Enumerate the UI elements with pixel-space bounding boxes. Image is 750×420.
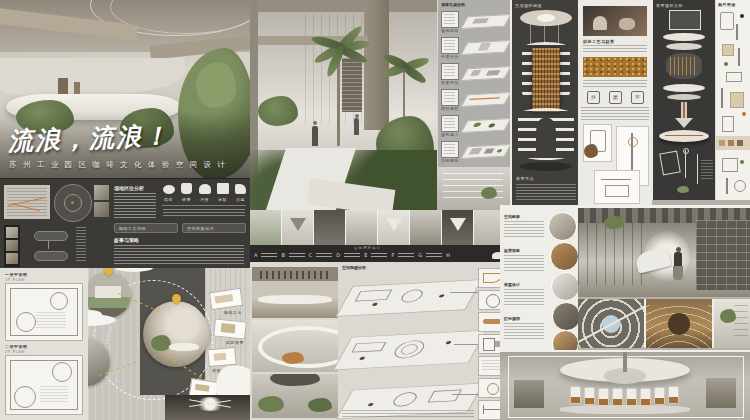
node-counter: [169, 343, 199, 351]
rod-sketch: [697, 154, 698, 184]
gen-step: 中庭抬升: [438, 35, 511, 61]
tag2-label: 空间体验转译: [187, 226, 214, 231]
brew-jar: [612, 388, 623, 406]
leader-line: [450, 292, 478, 293]
hero-render-panel: 流浪，流浪！ 苏 州 工 业 园 区 咖 啡 文 化 体 验 空 间 设 计: [0, 0, 250, 178]
axon-plate-1: [336, 279, 483, 316]
explode-stem: [681, 102, 687, 118]
funnel-shape: [450, 218, 466, 231]
sequence-timeline: 空间序列索引 A B C D E F G H: [250, 245, 510, 262]
note-heading: 装置设计: [504, 282, 520, 287]
gen-step: 路径串联: [438, 87, 511, 113]
gen-step-label: 功能细化: [441, 158, 459, 163]
part-sketch: [736, 24, 738, 40]
plans-panel: 一层平面图 1F PLAN 二层平面图 2F PLAN: [0, 268, 88, 420]
curved-shelf-render: [646, 299, 714, 348]
part-sketch: [722, 116, 734, 132]
mini-roaster-sketch: [584, 144, 598, 158]
axis-letter: H: [446, 252, 450, 258]
divider: [162, 205, 246, 206]
carousel-base: [560, 405, 690, 414]
device-explode-panel: 装置爆炸分析: [652, 0, 716, 200]
axis-letter: F: [391, 252, 394, 258]
journey-node-cafe: [143, 301, 209, 367]
icon-caption-lines: [163, 209, 245, 217]
shelf-plant: [604, 216, 624, 229]
explode-disk: [667, 94, 701, 100]
gen-slab: [461, 40, 511, 54]
coffee-bean-texture: [583, 57, 647, 77]
storage-rack: [696, 220, 750, 290]
brew-jar: [640, 388, 651, 406]
gen-slab: [461, 66, 511, 80]
tower-note: 装置节点: [516, 176, 534, 181]
poster-title: 流浪，流浪！: [7, 119, 170, 158]
site-paragraph: [114, 193, 156, 219]
film-frame: [6, 240, 18, 251]
axis-letter: C: [309, 252, 313, 258]
dome-oculus-render: [578, 299, 646, 348]
site-analysis-panel: 场地区位分析 烘焙 研磨 冲煮 萃取 品鉴 咖啡工艺流程 空间体验转译 叙事与策…: [0, 178, 250, 269]
roaster-silhouette: [619, 18, 635, 30]
part-dot: [740, 14, 744, 18]
note-paragraph: [504, 289, 544, 305]
note-photo: [552, 302, 578, 331]
explode-disk: [663, 33, 705, 41]
plan-round-room: [16, 312, 36, 332]
plan-hatch: [40, 386, 68, 404]
gen-slab: [461, 14, 511, 28]
explode-label: 装置爆炸分析: [656, 3, 683, 8]
vignette: [250, 210, 281, 245]
funnel-shape: [290, 218, 306, 231]
film-strip: [4, 225, 20, 267]
gen-step: 场地体块: [438, 9, 511, 35]
mezzanine-curve: [0, 58, 185, 96]
vignette: [314, 210, 345, 245]
cable: [558, 24, 559, 44]
person-head: [355, 114, 359, 118]
note-heading: 材质策略: [504, 248, 520, 253]
gen-step-label: 体量切分: [441, 80, 459, 85]
narrative-paragraph: [114, 245, 244, 265]
cart-icon: [235, 184, 246, 194]
leader-line: [454, 344, 478, 345]
shelf-bottles: [260, 271, 330, 279]
site-photo-chip: [94, 185, 109, 200]
gen-slab: [461, 118, 511, 132]
tower-amber-core: [532, 48, 560, 112]
figure-skirt: [673, 266, 683, 280]
site-dot: [71, 201, 74, 204]
tag-bar: 咖啡工艺流程: [114, 223, 178, 233]
gen-step-label: 绿化植入: [441, 132, 459, 137]
timeline-title: 空间序列索引: [354, 246, 381, 250]
parts-catalogue-panel: 构件图录: [715, 0, 750, 200]
gen-slab: [461, 92, 511, 106]
courtyard-render-panel: [250, 0, 437, 210]
parts-header: 构件图录: [718, 2, 736, 7]
axon-header: 空间轴测分析: [342, 265, 366, 270]
brew-jar: [626, 388, 637, 406]
plan-round-room: [14, 386, 36, 408]
arrow-down: [48, 241, 49, 249]
interior-shelf-lines: [734, 305, 748, 339]
note-heading: 灯光氛围: [504, 316, 520, 321]
side-machine: [706, 378, 736, 408]
rod-joint: [683, 148, 689, 154]
counter-top: [258, 295, 332, 304]
leader-line: [452, 394, 478, 395]
gen-step-label: 场地体块: [441, 28, 459, 33]
note-photo: [548, 212, 577, 241]
part-sketch: [730, 92, 744, 108]
icon-label: 品鉴: [236, 197, 245, 202]
journey-map-panel: WANDERING COFFEE CULTURE LINE 咖啡豆仓 烘焙装置 …: [88, 268, 255, 420]
plan2-sublabel: 2F PLAN: [5, 349, 25, 354]
explode-funnel: [675, 118, 693, 128]
process-paragraph: [581, 107, 649, 120]
part-sketch: [734, 180, 746, 192]
gen-sketch-box: [441, 89, 459, 106]
axis-bar: [371, 253, 387, 257]
brew-jar: [654, 387, 665, 405]
gen-step: 功能细化: [438, 139, 511, 165]
note-paragraph: [504, 221, 544, 237]
roaster-caption: 烘焙工艺与材质: [583, 39, 615, 44]
process-material-panel: 烘焙工艺与材质 烘 磨 萃: [578, 0, 652, 208]
roaster-photo: [583, 6, 647, 36]
render-bar-counter: [252, 267, 338, 318]
axis-bar: [344, 253, 360, 257]
cable: [544, 24, 545, 44]
design-notes-panel: 空间叙事 材质策略 装置设计 灯光氛围: [500, 208, 578, 350]
gen-sketch-box: [441, 11, 459, 28]
gen-sketch-box: [441, 141, 459, 158]
material-text: [583, 80, 647, 88]
plan1-sublabel: 1F PLAN: [5, 277, 25, 282]
plan-round-room: [52, 362, 72, 382]
vignette: [410, 210, 441, 245]
tower-opening: [536, 118, 556, 152]
roaster-silhouette: [593, 16, 607, 30]
amber-seat: [282, 352, 304, 364]
gen-sketch-box: [441, 37, 459, 54]
part-sketch: [726, 178, 728, 194]
explode-pin-cluster: [666, 53, 702, 79]
shelf-void: [668, 313, 690, 335]
axis-letter: D: [336, 252, 340, 258]
generation-diagram-panel: 形体生成分析 场地体块 中庭抬升 体量切分 路径串联 绿化植入: [437, 0, 511, 167]
tower-annotation-lines: [516, 184, 576, 200]
vignette: [282, 210, 313, 245]
part-sketch: [738, 48, 740, 66]
site-heading: 场地区位分析: [114, 185, 144, 191]
vignette: [442, 210, 473, 245]
design-board-collage: 流浪，流浪！ 苏 州 工 业 园 区 咖 啡 文 化 体 验 空 间 设 计 场…: [0, 0, 750, 420]
rod-sketch: [685, 150, 686, 178]
film-frame: [6, 253, 18, 264]
vertical-note: [76, 227, 86, 263]
brew-jar: [598, 388, 609, 406]
axis-letter: G: [418, 252, 422, 258]
narrative-heading: 叙事与策略: [114, 237, 139, 243]
cafe-plants: [258, 396, 284, 412]
render-machine-room: [252, 320, 338, 372]
icon-label: 冲煮: [200, 197, 209, 202]
axon-plate-2: [333, 330, 487, 370]
center-mast: [623, 352, 627, 372]
journey-tag: 咖啡豆仓: [224, 310, 242, 315]
tag1-label: 咖啡工艺流程: [119, 226, 146, 231]
gen-step-label: 路径串联: [441, 106, 459, 111]
site-map-sketch: [4, 185, 50, 219]
axon-analysis-panel: 空间轴测分析: [250, 262, 510, 420]
gen-sketch-box: [441, 63, 459, 80]
icon-label: 萃取: [218, 197, 227, 202]
render-green-cafe: [252, 374, 338, 418]
node-plant: [151, 335, 171, 351]
beans-icon: [163, 185, 175, 194]
part-sketch: [722, 158, 738, 172]
explode-disk: [663, 84, 705, 92]
gen-sketch-box: [441, 115, 459, 132]
poster-subtitle: 苏 州 工 业 园 区 咖 啡 文 化 体 验 空 间 设 计: [9, 160, 227, 170]
brew-jar: [668, 386, 679, 404]
axon-caption-lines: [342, 410, 474, 417]
tower-label: 生成爆炸轴测: [515, 3, 542, 8]
chandelier-render: [165, 395, 255, 420]
walking-figure: [674, 252, 682, 267]
shrub-left: [258, 96, 298, 126]
vignette-strip: [250, 210, 510, 245]
shelf-plant: [481, 187, 497, 199]
cafe-plants: [308, 398, 332, 412]
part-dot: [742, 112, 746, 116]
part-sketch: [721, 88, 723, 108]
axis-bar: [289, 253, 305, 257]
gen-step: 绿化植入: [438, 113, 511, 139]
roaster-text: [583, 45, 647, 54]
gen-step: 体量切分: [438, 61, 511, 87]
axis-letter: B: [281, 252, 284, 258]
oculus-beam: [578, 304, 646, 343]
white-interior-render: [714, 299, 750, 348]
brew-jar: [570, 386, 581, 404]
film-frame: [6, 227, 18, 238]
part-sketch: [720, 12, 734, 30]
site-circle-map: [54, 184, 92, 222]
floor-plan-2: [5, 355, 83, 415]
note-photo: [551, 272, 578, 301]
note-photo: [550, 242, 578, 271]
brew-carousel-render: [500, 350, 750, 420]
person-head: [313, 121, 317, 125]
vignette: [346, 210, 377, 245]
part-dot: [724, 62, 728, 66]
tower-shadow: [520, 162, 572, 171]
kettle-icon: [199, 184, 211, 194]
plan-hatch: [36, 312, 66, 330]
hanging-branches: [270, 374, 320, 386]
gen-slab: [461, 144, 511, 158]
roof-oculus: [537, 14, 555, 22]
journey-sketch-item: [213, 318, 247, 339]
brew-jar: [584, 387, 595, 405]
process-icon-1: 烘: [587, 91, 600, 104]
note-heading: 空间叙事: [504, 214, 520, 219]
generation-header: 形体生成分析: [441, 2, 465, 7]
gen-step-label: 中庭抬升: [441, 54, 459, 59]
palm-tree: [298, 28, 378, 148]
explode-base-disk: [659, 130, 709, 142]
person: [354, 118, 359, 135]
roof-disk: [520, 10, 572, 26]
bar-equipment: [74, 82, 80, 94]
site-photo-chip: [94, 202, 109, 217]
figure-head: [676, 247, 681, 252]
axis-bar: [426, 253, 442, 257]
green-specimen: [677, 186, 689, 193]
explode-top-box: [669, 10, 701, 30]
cable: [530, 24, 531, 44]
process-icon-3: 萃: [631, 91, 644, 104]
axis-letter: E: [364, 252, 367, 258]
grinder-icon: [181, 183, 192, 194]
person: [312, 126, 318, 146]
explode-notes: [701, 160, 713, 180]
explode-disk: [666, 43, 702, 50]
component-box: [594, 170, 640, 204]
materials-band: [716, 136, 750, 150]
note-photo: [552, 330, 578, 350]
axis-bar: [316, 253, 332, 257]
note-paragraph: [504, 323, 544, 339]
tag-bar: 空间体验转译: [182, 223, 246, 233]
bar-equipment: [58, 78, 68, 94]
vignette: [378, 210, 409, 245]
strategy-pill: [34, 231, 68, 241]
axis-bar: [261, 253, 277, 257]
tower-explode-panel: 生成爆炸轴测 装置节点: [510, 0, 580, 208]
axis-bar: [398, 253, 414, 257]
part-sketch: [722, 44, 734, 56]
funnel-shape: [386, 218, 402, 231]
part-dot: [740, 160, 744, 164]
process-icon-2: 磨: [609, 91, 622, 104]
floor-plan-1: [5, 283, 83, 341]
journey-tag: 烘焙装置: [226, 340, 244, 345]
shelf-render-small: [437, 167, 510, 210]
plan-round-room: [50, 292, 68, 310]
part-sketch: [726, 72, 742, 82]
plant-mass-right-highlight: [196, 62, 236, 108]
timeline-row: A B C D E F G H: [254, 251, 506, 259]
icon-label: 烘焙: [164, 197, 173, 202]
espresso-machine-icon: [217, 183, 229, 194]
top-beam: [250, 0, 437, 12]
axis-letter: A: [254, 252, 257, 258]
industrial-hall-render: [578, 208, 750, 297]
side-machine: [514, 380, 544, 408]
panel-sketch: [659, 151, 681, 176]
note-paragraph: [504, 255, 544, 271]
steel-frames-left: [578, 223, 648, 285]
strategy-pill: [34, 251, 68, 261]
icon-label: 研磨: [182, 197, 191, 202]
